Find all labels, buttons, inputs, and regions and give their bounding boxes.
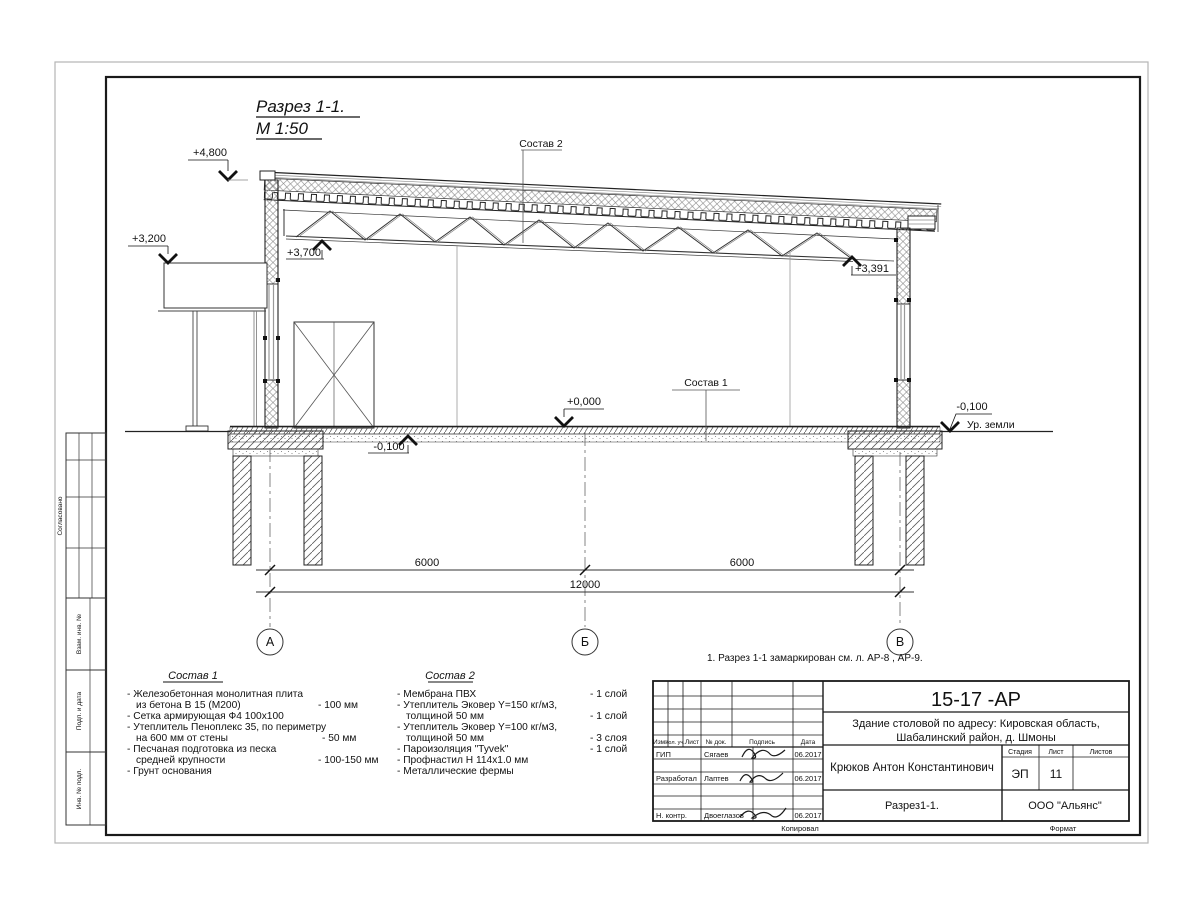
axis-label-v: В <box>896 635 904 649</box>
row-date: 06.2017 <box>794 774 821 783</box>
drawing-canvas: Разрез 1-1. М 1:50 +4,800 +3,200 +3,700 … <box>0 0 1200 900</box>
drawing-sheet: Разрез 1-1. М 1:50 +4,800 +3,200 +3,700 … <box>0 0 1200 900</box>
elev-3700: +3,700 <box>287 247 321 259</box>
sostav2-line: толщиной 50 мм <box>406 711 484 722</box>
sostav2-line: - Мембрана ПВХ <box>397 688 476 700</box>
sostav2-value: - 1 слой <box>590 689 627 700</box>
sostav1-line: средней крупности <box>136 755 225 766</box>
sostav1-line: - Железобетонная монолитная плита <box>127 688 303 700</box>
callout-sostav1: Состав 1 <box>684 377 728 389</box>
author-name: Крюков Антон Константинович <box>830 762 994 774</box>
company-name: ООО "Альянс" <box>1028 800 1102 812</box>
object-line1: Здание столовой по адресу: Кировская обл… <box>852 718 1100 730</box>
sostav1-line: - Грунт основания <box>127 766 212 777</box>
sheet-title: Разрез1-1. <box>885 800 939 812</box>
row-name: Лаптев <box>704 774 729 783</box>
dim-12000: 12000 <box>570 579 601 591</box>
stamp-vzam: Взам. инв. № <box>76 614 83 654</box>
sostav2-line: толщиной 50 мм <box>406 733 484 744</box>
sostav1-line: - Сетка армирующая Ф4 100х100 <box>127 711 284 722</box>
stage-value: ЭП <box>1011 767 1028 781</box>
sheet-value: 11 <box>1050 767 1063 781</box>
section-title: Разрез 1-1. <box>256 97 345 116</box>
row-role: Разработал <box>656 774 697 783</box>
col-doc: № док. <box>706 739 727 746</box>
sostav2-line: - Утеплитель Эковер Y=150 кг/м3, <box>397 700 557 711</box>
sostav1-line: из бетона В 15 (М200) <box>136 699 241 711</box>
sostav2-line: - Утеплитель Эковер Y=100 кг/м3, <box>397 722 557 733</box>
stamp-agreed: Согласовано <box>57 496 64 535</box>
stage-label: Стадия <box>1008 749 1032 756</box>
sostav1-line: - Утеплитель Пеноплекс 35, по периметру <box>127 722 327 733</box>
callout-sostav2: Состав 2 <box>519 138 563 150</box>
row-role: Н. контр. <box>656 811 687 820</box>
elev-0000: +0,000 <box>567 396 601 408</box>
sostav2-line: - Профнастил Н 114х1.0 мм <box>397 754 528 766</box>
doc-code: 15-17 -АР <box>931 689 1021 711</box>
sostav1-value: - 100 мм <box>318 700 358 711</box>
row-date: 06.2017 <box>794 811 821 820</box>
row-role: ГИП <box>656 750 671 759</box>
axis-label-b: Б <box>581 635 589 649</box>
elev-m100-right: -0,100 <box>956 401 987 413</box>
row-date: 06.2017 <box>794 750 821 759</box>
sostav1-value: - 50 мм <box>322 733 356 744</box>
sheet-label: Лист <box>1048 749 1064 756</box>
col-sign: Подпись <box>749 739 775 746</box>
row-name: Сягаев <box>704 750 728 759</box>
stamp-podp: Подп. и дата <box>76 691 83 730</box>
sostav2-value: - 1 слой <box>590 711 627 722</box>
elev-m100-left: -0,100 <box>373 441 404 453</box>
col-kol: Кол. уч. <box>665 740 685 746</box>
sostav2-value: - 3 слоя <box>590 733 627 744</box>
sheet-note: 1. Разрез 1-1 замаркирован см. л. АР-8 ,… <box>707 653 923 664</box>
sostav2-heading: Состав 2 <box>425 670 475 682</box>
format-label: Формат <box>1050 824 1077 833</box>
sostav2-value: - 1 слой <box>590 744 627 755</box>
ground-level-label: Ур. земли <box>967 419 1015 431</box>
right-eave-channel <box>908 216 935 229</box>
sostav1-value: - 100-150 мм <box>318 755 378 766</box>
axis-label-a: А <box>266 635 275 649</box>
col-date: Дата <box>801 739 816 746</box>
col-list: Лист <box>685 739 699 746</box>
dim-6000-left: 6000 <box>415 557 439 569</box>
sostav2-line: - Металлические фермы <box>397 765 514 777</box>
copied-label: Копировал <box>781 824 819 833</box>
sostav1-line: - Песчаная подготовка из песка <box>127 744 277 755</box>
sostav1-line: на 600 мм от стены <box>136 733 228 744</box>
elev-4800: +4,800 <box>193 147 227 159</box>
elev-3200: +3,200 <box>132 233 166 245</box>
dim-6000-right: 6000 <box>730 557 754 569</box>
sheets-label: Листов <box>1090 749 1113 756</box>
sostav2-line: - Пароизоляция "Tyvek" <box>397 744 509 755</box>
sostav1-heading: Состав 1 <box>168 670 218 682</box>
section-scale: М 1:50 <box>256 119 309 138</box>
object-line2: Шабалинский район, д. Шмоны <box>896 732 1056 744</box>
elev-3391: +3,391 <box>855 263 889 275</box>
row-name: Двоеглазов <box>704 811 744 820</box>
stamp-inv: Инв. № подл. <box>76 769 83 810</box>
